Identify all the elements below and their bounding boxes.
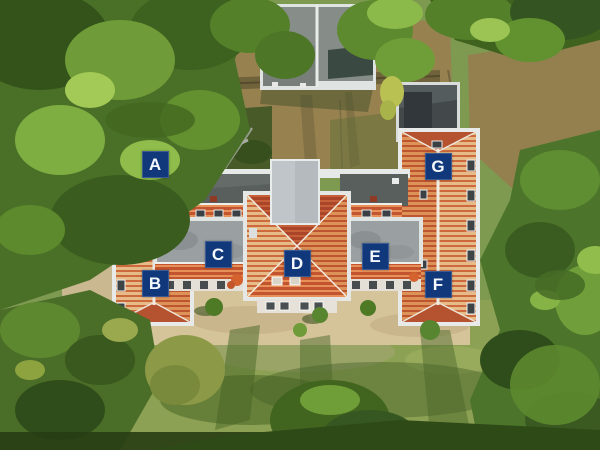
section-labels-overlay: ABCDEFG <box>0 0 600 450</box>
section-label-text: F <box>433 276 443 293</box>
section-label-G: G <box>425 153 452 180</box>
section-label-F: F <box>425 271 452 298</box>
section-label-text: E <box>369 248 380 265</box>
section-label-D: D <box>284 250 311 277</box>
section-label-B: B <box>142 270 169 297</box>
section-label-text: B <box>149 275 161 292</box>
section-label-text: A <box>149 156 161 173</box>
section-label-E: E <box>362 243 389 270</box>
section-label-A: A <box>142 151 169 178</box>
section-label-text: G <box>431 158 444 175</box>
section-label-C: C <box>205 241 232 268</box>
section-label-text: D <box>291 255 303 272</box>
aerial-photo: ABCDEFG <box>0 0 600 450</box>
section-label-text: C <box>212 246 224 263</box>
